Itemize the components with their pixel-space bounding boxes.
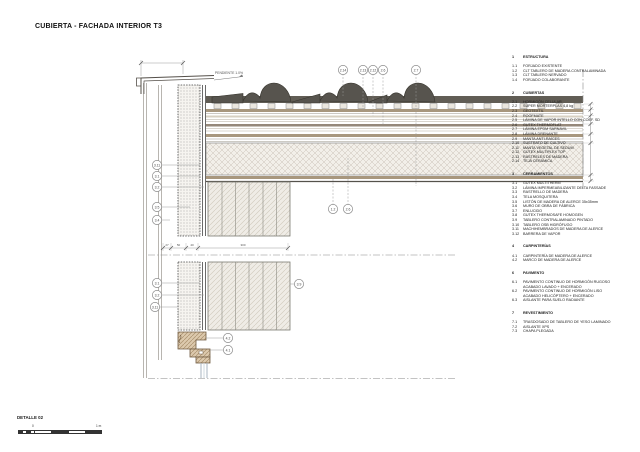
callout-label: 3.9 xyxy=(297,282,302,286)
legend-item: 6.3AISLANTE PARA SUELO RADIANTE xyxy=(512,298,636,303)
dimension-value: 40 xyxy=(190,243,194,247)
detail-label: DETALLE 02 xyxy=(17,415,43,420)
legend-section-header: 1ESTRUCTURA xyxy=(512,55,636,60)
callout-label: 3.2 xyxy=(155,293,160,297)
legend-section-header: 7REVESTIMIENTO xyxy=(512,311,636,316)
legend-item-text: BARRERA DE VAPOR xyxy=(523,232,636,237)
callout-label: 2.6 xyxy=(346,207,351,211)
callout-4.1: 4.1 xyxy=(210,345,233,354)
legend-item-text: AISLANTE PARA SUELO RADIANTE xyxy=(523,298,636,303)
legend-item-number: 7 xyxy=(512,311,523,316)
legend-item-number: 2.14 xyxy=(512,159,523,164)
legend-item-text: CARPINTERÍAS xyxy=(523,244,636,249)
legend-section-header: 2CUBIERTAS xyxy=(512,91,636,96)
legend-item: 6.2PAVIMENTO CONTINUO DE HORMIGÓN LISO A… xyxy=(512,289,636,298)
legend-item: 6.1PAVIMENTO CONTINUO DE HORMIGÓN RUGOSO… xyxy=(512,280,636,289)
legend-item: 1.4FORJADO COLABORANTE xyxy=(512,78,636,83)
legend-item-text: TEJA CERÁMICA xyxy=(523,159,636,164)
legend-item: 7.3CHAPA PLEGADA xyxy=(512,329,636,334)
callout-label: 3.11 xyxy=(154,163,160,167)
legend-section-header: 3CERRAMIENTOS xyxy=(512,172,636,177)
wall-insulation-column xyxy=(178,262,200,330)
glazing xyxy=(201,363,207,378)
legend-item-text: CUBIERTAS xyxy=(523,91,636,96)
scale-bar xyxy=(18,430,102,434)
callout-4.2: 4.2 xyxy=(206,333,233,342)
legend-section: 3CERRAMIENTOS3.1GUTEX MULTITHERM3.2LÁMIN… xyxy=(512,172,636,236)
legend-item: 3.12BARRERA DE VAPOR xyxy=(512,232,636,237)
scale-segment xyxy=(69,431,86,433)
legend-item: 4.2MARCO DE MADERA DE ALERCE xyxy=(512,258,636,263)
callout-label: 3.1 xyxy=(155,174,160,178)
legend-item-text: ESTRUCTURA xyxy=(523,55,636,60)
legend-item: 2.14TEJA CERÁMICA xyxy=(512,159,636,164)
legend-item-number: 6.1 xyxy=(512,280,523,289)
legend-item-number: 6.3 xyxy=(512,298,523,303)
callout-label: 3.5 xyxy=(155,205,160,209)
callout-label: 2.6 xyxy=(381,68,386,72)
legend-item-number: 4 xyxy=(512,244,523,249)
legend-section-header: 4CARPINTERÍAS xyxy=(512,244,636,249)
legend-section: 1ESTRUCTURA1.1FORJADO EXISTENTE1.2CLT TA… xyxy=(512,55,636,83)
legend-item-text: PAVIMENTO xyxy=(523,271,636,276)
dimension-row xyxy=(161,243,290,251)
callout-label: 3.2 xyxy=(155,185,160,189)
legend-item-number: 1.4 xyxy=(512,78,523,83)
clt-wall-lower xyxy=(208,262,290,330)
dimension-value: 50 xyxy=(177,243,181,247)
window-frame xyxy=(178,332,210,378)
legend: 1ESTRUCTURA1.1FORJADO EXISTENTE1.2CLT TA… xyxy=(512,55,636,342)
callout-label: 3.1 xyxy=(155,281,160,285)
callout-label: 4.1 xyxy=(226,348,231,352)
legend-section-header: 6PAVIMENTO xyxy=(512,271,636,276)
scale-segment xyxy=(86,431,102,433)
legend-item-number: 4.2 xyxy=(512,258,523,263)
callout-label: 1.2 xyxy=(331,207,336,211)
legend-item-number: 2 xyxy=(512,91,523,96)
scale-segment xyxy=(52,431,69,433)
callout-label: 3.11 xyxy=(152,305,158,309)
scale-end-label: 1 m xyxy=(96,424,101,428)
legend-item-text: MARCO DE MADERA DE ALERCE xyxy=(523,258,636,263)
callout-label: 2.7 xyxy=(414,68,419,72)
legend-section: 7REVESTIMIENTO7.1TRASDOSADO DE TABLERO D… xyxy=(512,311,636,334)
legend-item-text: PAVIMENTO CONTINUO DE HORMIGÓN LISO ACAB… xyxy=(523,289,636,298)
dimension-top-left xyxy=(139,60,185,76)
legend-item-number: 6 xyxy=(512,271,523,276)
dimension-value: 27 xyxy=(165,243,169,247)
page: { "page": { "title": "CUBIERTA - FACHADA… xyxy=(0,0,640,452)
legend-item-text: CHAPA PLEGADA xyxy=(523,329,636,334)
callout-label: 2.13 xyxy=(360,68,367,72)
legend-item-text: CERRAMIENTOS xyxy=(523,172,636,177)
legend-section: 4CARPINTERÍAS4.1CARPINTERÍA DE MADERA DE… xyxy=(512,244,636,262)
legend-item-text: PAVIMENTO CONTINUO DE HORMIGÓN RUGOSO AC… xyxy=(523,280,636,289)
clt-wall-upper xyxy=(208,182,290,236)
wall-insulation-column xyxy=(178,85,200,236)
legend-item-number: 7.3 xyxy=(512,329,523,334)
legend-section: 2CUBIERTAS2.1HORMIGÓN CELULAR2.2SUPER MO… xyxy=(512,91,636,165)
callout-label: 4.2 xyxy=(226,336,231,340)
legend-item-text: REVESTIMIENTO xyxy=(523,311,636,316)
legend-item-number: 3.12 xyxy=(512,232,523,237)
scale-segment xyxy=(35,431,52,433)
legend-item-text: FORJADO COLABORANTE xyxy=(523,78,636,83)
roof-tiles xyxy=(212,83,435,103)
legend-item-number: 1 xyxy=(512,55,523,60)
legend-section: 6PAVIMENTO6.1PAVIMENTO CONTINUO DE HORMI… xyxy=(512,271,636,303)
callout-1.2: 1.2 xyxy=(328,179,337,214)
window-head-frame xyxy=(178,332,206,349)
callout-label: 2.14 xyxy=(340,68,347,72)
dimension-value: 300 xyxy=(240,243,245,247)
callout-3.9: 3.9 xyxy=(290,279,304,288)
callout-3.11: 3.11 xyxy=(150,302,178,311)
callout-label: 3.4 xyxy=(155,218,160,222)
scale-zero-label: 0 xyxy=(32,424,34,428)
legend-item-number: 6.2 xyxy=(512,289,523,298)
legend-item-number: 3 xyxy=(512,172,523,177)
slope-label: PENDIENTE 1.0% xyxy=(215,71,243,75)
callout-label: 2.12 xyxy=(370,68,377,72)
